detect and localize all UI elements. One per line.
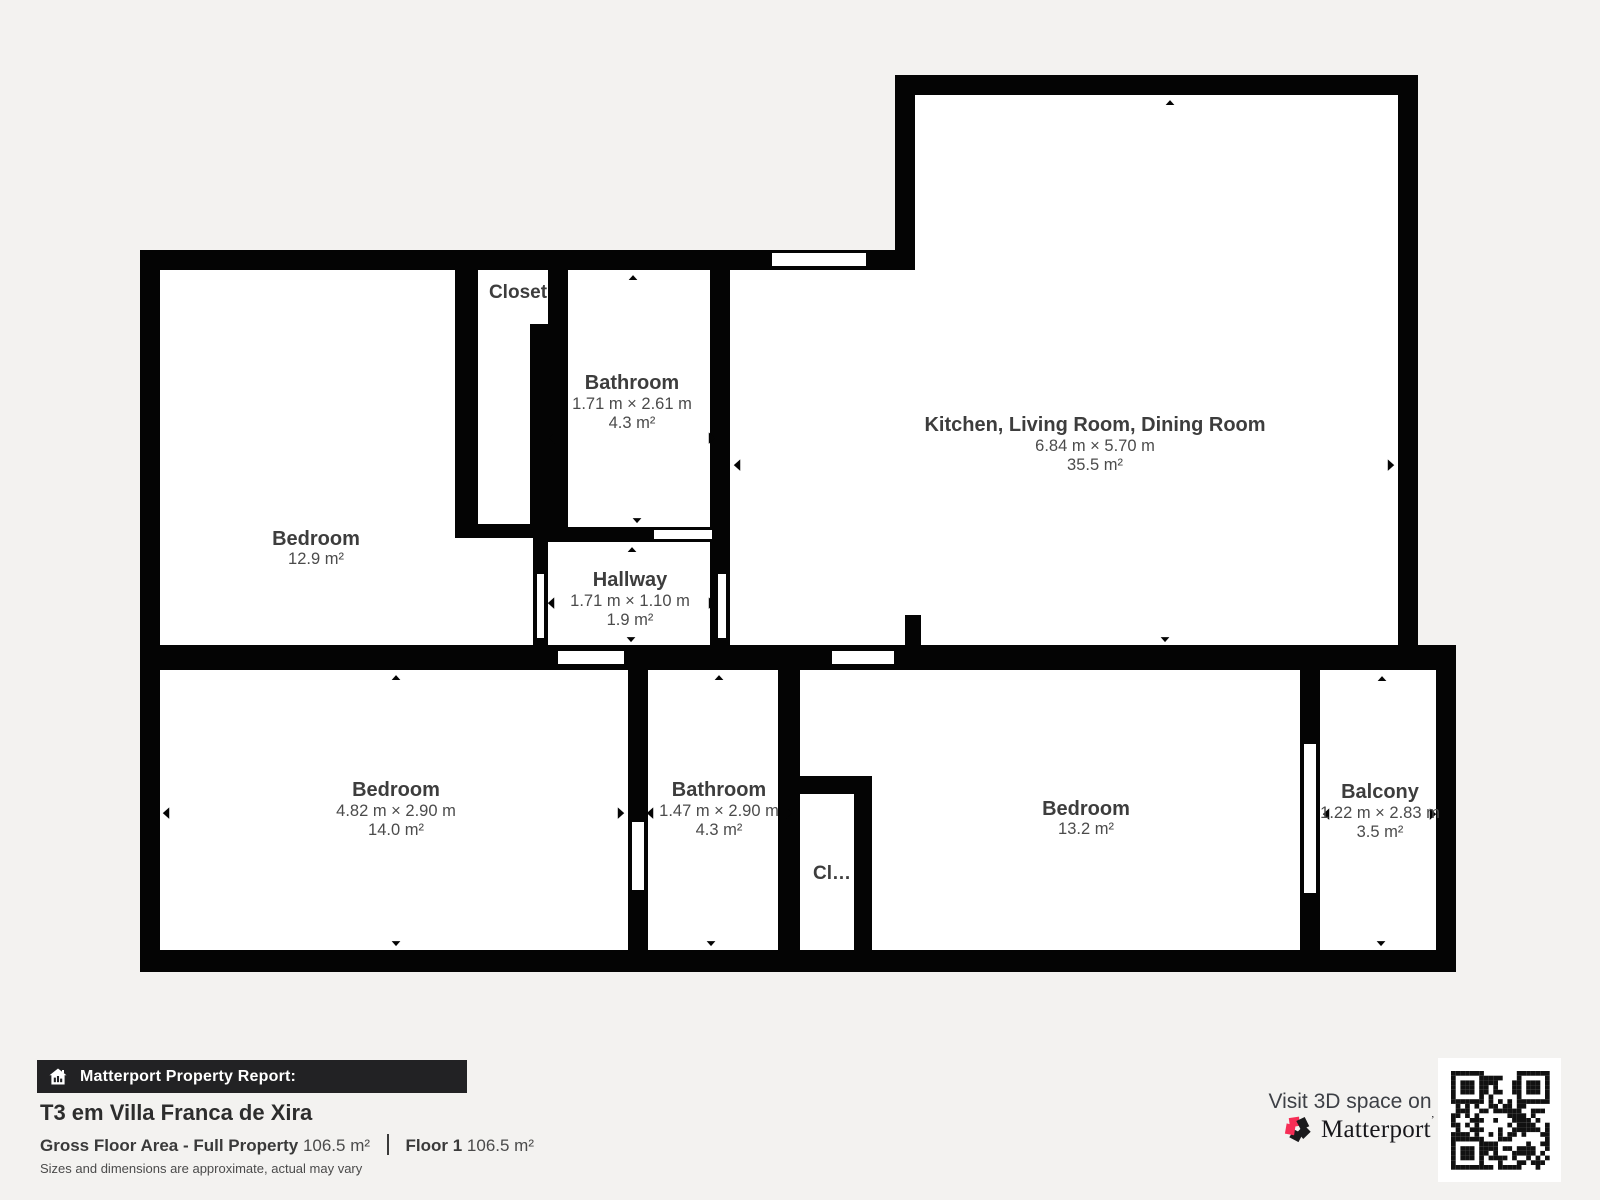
measure-arrow-up-icon: ▲ <box>712 673 727 681</box>
door-opening <box>535 572 546 640</box>
room-name: Bathroom <box>659 780 779 801</box>
room-label-balcony: Balcony 1.22 m × 2.83 m 3.5 m² <box>1320 782 1440 842</box>
measure-arrow-down-icon: ▼ <box>624 635 639 643</box>
room-dimensions: 1.47 m × 2.90 m <box>659 801 779 821</box>
room-area: 13.2 m² <box>1042 820 1130 839</box>
measure-arrow-right-icon: ▶ <box>709 595 716 610</box>
measure-arrow-left-icon: ◀ <box>548 595 555 610</box>
wall <box>895 75 915 270</box>
gross-area-value: 106.5 m² <box>303 1136 370 1155</box>
measure-arrow-right-icon: ▶ <box>786 805 793 820</box>
room-name: Hallway <box>570 570 690 591</box>
room-area: 3.5 m² <box>1320 823 1440 842</box>
room-name: Kitchen, Living Room, Dining Room <box>924 415 1265 436</box>
wall <box>628 670 648 950</box>
room-label-bedroom-top-left: Bedroom 12.9 m² <box>272 529 360 569</box>
room-name: Closet <box>489 282 547 303</box>
visit-3d-text: Visit 3D space on <box>1268 1090 1431 1114</box>
room-label-bedroom-bottom-left: Bedroom 4.82 m × 2.90 m 14.0 m² <box>336 780 456 840</box>
measure-arrow-left-icon: ◀ <box>549 430 556 445</box>
room-area: 14.0 m² <box>336 821 456 840</box>
room-name: Bedroom <box>1042 799 1130 820</box>
measure-arrow-left-icon: ◀ <box>163 805 170 820</box>
report-label: Matterport Property Report: <box>80 1068 296 1086</box>
wall <box>895 75 1418 95</box>
room-area: 35.5 m² <box>924 456 1265 475</box>
area-summary: Gross Floor Area - Full Property 106.5 m… <box>40 1134 534 1156</box>
room-label-kitchen-living-dining: Kitchen, Living Room, Dining Room 6.84 m… <box>924 415 1265 475</box>
wall <box>140 645 1456 670</box>
property-title: T3 em Villa Franca de Xira <box>40 1100 312 1126</box>
room-fill <box>915 95 1398 645</box>
door-opening <box>556 649 626 666</box>
room-dimensions: 1.71 m × 2.61 m <box>572 394 692 414</box>
wall <box>455 250 478 538</box>
qr-code <box>1438 1058 1561 1182</box>
wall <box>548 250 568 538</box>
room-area: 4.3 m² <box>572 414 692 433</box>
room-dimensions: 4.82 m × 2.90 m <box>336 801 456 821</box>
room-name: Bathroom <box>572 373 692 394</box>
room-area: 1.9 m² <box>570 611 690 630</box>
measure-arrow-down-icon: ▼ <box>389 939 404 947</box>
matterport-brand: Matterport’ <box>1282 1113 1435 1144</box>
room-dimensions: 1.22 m × 2.83 m <box>1320 803 1440 823</box>
room-label-hallway: Hallway 1.71 m × 1.10 m 1.9 m² <box>570 570 690 630</box>
gross-area-label: Gross Floor Area - Full Property <box>40 1136 298 1155</box>
measure-arrow-left-icon: ◀ <box>734 457 741 472</box>
measure-arrow-up-icon: ▲ <box>625 545 640 553</box>
window-opening <box>770 251 868 268</box>
measure-arrow-down-icon: ▼ <box>704 939 719 947</box>
room-name: Bedroom <box>272 529 360 550</box>
room-dimensions: 1.71 m × 1.10 m <box>570 591 690 611</box>
floor-plan: ▲ ▼ ◀ ▶ ▲ ▼ ◀ ▶ ▲ ▼ ◀ ▶ ▲ ▼ ◀ ▶ ▲ ▼ ◀ ▶ … <box>0 0 1600 1200</box>
room-name: Bedroom <box>336 780 456 801</box>
room-label-bathroom-top: Bathroom 1.71 m × 2.61 m 4.3 m² <box>572 373 692 433</box>
divider <box>387 1134 389 1155</box>
wall <box>854 776 872 950</box>
measure-arrow-up-icon: ▲ <box>1375 674 1390 682</box>
wall <box>905 615 921 647</box>
measure-arrow-right-icon: ▶ <box>709 430 716 445</box>
room-area: 12.9 m² <box>272 550 360 569</box>
floor-label: Floor 1 <box>406 1136 463 1155</box>
measure-arrow-right-icon: ▶ <box>618 805 625 820</box>
wall <box>140 950 1456 972</box>
window-opening <box>1302 742 1318 895</box>
door-opening <box>830 649 896 666</box>
disclaimer-text: Sizes and dimensions are approximate, ac… <box>40 1161 362 1176</box>
wall <box>140 250 160 972</box>
measure-arrow-right-icon: ▶ <box>1388 457 1395 472</box>
measure-arrow-up-icon: ▲ <box>626 273 641 281</box>
door-opening <box>630 820 646 892</box>
measure-arrow-down-icon: ▼ <box>1374 939 1389 947</box>
room-label-bedroom-bottom-right: Bedroom 13.2 m² <box>1042 799 1130 839</box>
door-opening <box>716 572 728 640</box>
measure-arrow-up-icon: ▲ <box>1163 98 1178 106</box>
room-area: 4.3 m² <box>659 821 779 840</box>
house-report-icon <box>48 1067 68 1087</box>
measure-arrow-left-icon: ◀ <box>647 805 654 820</box>
floor-value: 106.5 m² <box>467 1136 534 1155</box>
room-label-closet-bottom: Cl… <box>813 863 851 884</box>
room-label-bathroom-bottom: Bathroom 1.47 m × 2.90 m 4.3 m² <box>659 780 779 840</box>
room-label-closet-top: Closet <box>489 282 547 303</box>
report-header-bar: Matterport Property Report: <box>37 1060 467 1093</box>
matterport-logo-icon <box>1282 1113 1313 1144</box>
measure-arrow-up-icon: ▲ <box>389 673 404 681</box>
wall <box>530 324 548 538</box>
room-name: Balcony <box>1320 782 1440 803</box>
measure-arrow-down-icon: ▼ <box>630 516 645 524</box>
matterport-wordmark: Matterport’ <box>1321 1114 1435 1144</box>
room-name: Cl… <box>813 863 851 884</box>
wall <box>1398 75 1418 660</box>
room-dimensions: 6.84 m × 5.70 m <box>924 436 1265 456</box>
room-fill <box>730 270 915 645</box>
door-opening <box>652 528 714 541</box>
measure-arrow-down-icon: ▼ <box>1158 635 1173 643</box>
